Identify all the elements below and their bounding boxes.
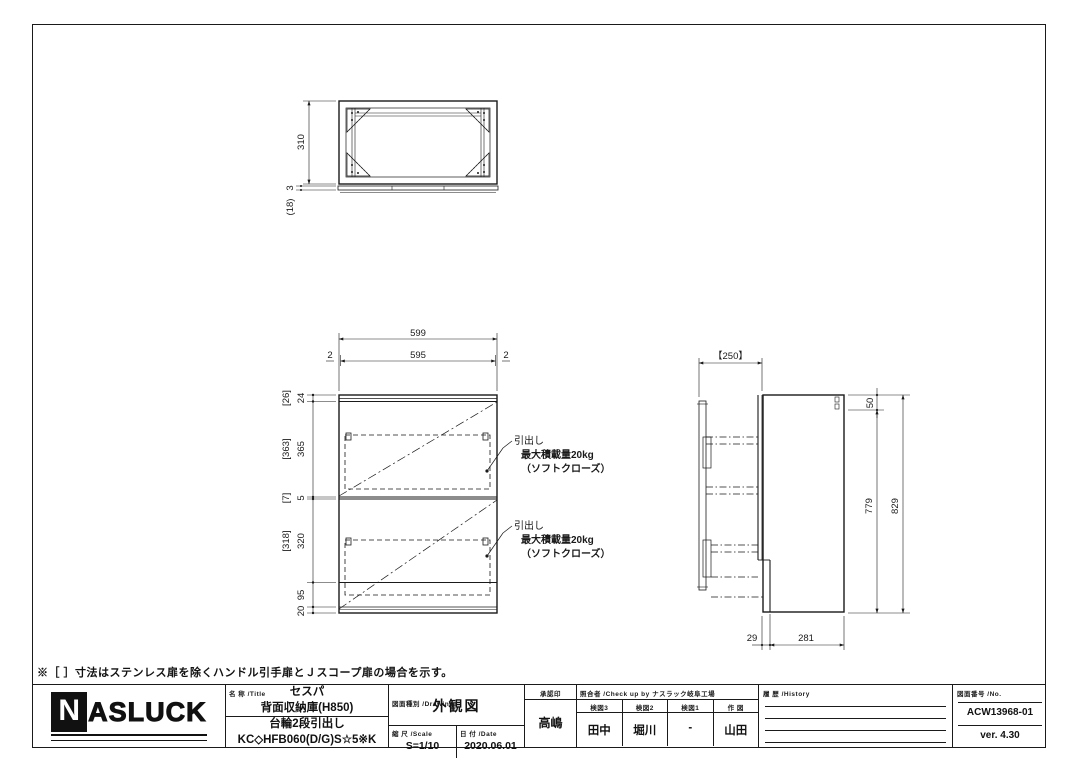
- dim-310: 310: [296, 134, 307, 150]
- nasluck-logo: NASLUCK: [51, 692, 206, 741]
- drawer-note-2-line2: 最大積載量20kg: [521, 533, 594, 546]
- product-name: 背面収納庫(H850): [226, 701, 388, 717]
- drawing-number-value: ACW13968-01: [953, 707, 1047, 718]
- check-col-1-name: -: [668, 722, 713, 734]
- bracket-dimension-note: ※［ ］寸法はステンレス扉を除くハンドル引手扉とＪスコープ扉の場合を示す。: [37, 664, 453, 680]
- product-type: 台輪2段引出し: [226, 716, 388, 733]
- drawing-version: ver. 4.30: [953, 730, 1047, 741]
- cad-drawing: 310 3 (18): [0, 0, 1080, 764]
- check-col-3: 検図3 田中: [577, 700, 623, 746]
- drawing-type-cell: 図面種別 /Drawing 外観図 縮 尺 /Scale S=1/10 日 付 …: [389, 685, 525, 747]
- title-block: NASLUCK 名 称 /Title セスパ 背面収納庫(H850) 台輪2段引…: [32, 684, 1046, 748]
- dim-50: 50: [865, 398, 876, 409]
- check-up-cell: 照合者 /Check up by ナスラック岐阜工場 検図3 田中 検図2 堀川…: [577, 685, 759, 747]
- dim-2-left: 2: [327, 350, 332, 361]
- check-up-label: 照合者 /Check up by ナスラック岐阜工場: [577, 685, 758, 700]
- approval-name: 高嶋: [525, 714, 576, 731]
- dim-829: 829: [890, 498, 901, 514]
- history-line: [765, 730, 946, 731]
- scale-label: 縮 尺 /Scale: [392, 728, 432, 738]
- date-cell: 日 付 /Date 2020.06.01: [457, 726, 524, 758]
- dim-779: 779: [864, 498, 875, 514]
- dim-318: [318]: [281, 530, 292, 551]
- dim-18: (18): [285, 199, 296, 216]
- check-col-draw-label: 作 図: [714, 700, 759, 713]
- front-view: 599 2 595 2 [26] 24 [363]: [281, 328, 611, 616]
- drawing-number-cell: 図面番号 /No. ACW13968-01 ver. 4.30: [953, 685, 1047, 747]
- date-value: 2020.06.01: [457, 740, 524, 752]
- drawing-number-label: 図面番号 /No.: [957, 688, 1002, 698]
- scale-value: S=1/10: [389, 740, 456, 752]
- check-col-3-label: 検図3: [577, 700, 622, 713]
- dim-595: 595: [410, 350, 426, 361]
- dim-599: 599: [410, 328, 426, 339]
- plan-view: 310 3 (18): [285, 101, 498, 215]
- dim-365: 365: [296, 441, 307, 457]
- dim-320: 320: [296, 533, 307, 549]
- dim-20: 20: [296, 606, 307, 617]
- title-label: 名 称 /Title: [229, 687, 266, 703]
- check-col-2-label: 検図2: [623, 700, 668, 713]
- number-separator: [958, 702, 1042, 703]
- side-view: 【250】 50 779 829 29 281: [697, 351, 910, 650]
- check-col-2-name: 堀川: [623, 722, 668, 738]
- history-cell: 履 歴 /History: [759, 685, 953, 747]
- product-series: セスパ: [290, 686, 325, 698]
- dim-26: [26]: [281, 390, 292, 406]
- dim-250: 【250】: [713, 351, 748, 362]
- date-label: 日 付 /Date: [460, 728, 497, 738]
- drawer-note-1-line2: 最大積載量20kg: [521, 448, 594, 461]
- logo-cell: NASLUCK: [33, 685, 226, 747]
- logo-wordmark: ASLUCK: [88, 697, 207, 727]
- dim-5: 5: [296, 495, 307, 500]
- check-col-3-name: 田中: [577, 722, 622, 738]
- history-label: 履 歴 /History: [763, 688, 810, 698]
- screw-dots: [351, 111, 485, 174]
- title-cell: 名 称 /Title セスパ 背面収納庫(H850) 台輪2段引出し KC◇HF…: [226, 685, 389, 747]
- check-col-1-label: 検図1: [668, 700, 713, 713]
- approval-label: 承認印: [525, 685, 576, 700]
- logo-letter-n: N: [51, 692, 87, 732]
- history-line: [765, 706, 946, 707]
- check-col-1: 検図1 -: [668, 700, 714, 746]
- dim-3: 3: [285, 185, 296, 190]
- logo-underline: [51, 734, 206, 741]
- dim-29: 29: [747, 633, 758, 644]
- dim-281: 281: [798, 633, 814, 644]
- drawer-note-2-line3: （ソフトクローズ）: [521, 547, 611, 560]
- check-col-2: 検図2 堀川: [623, 700, 669, 746]
- scale-cell: 縮 尺 /Scale S=1/10: [389, 726, 457, 758]
- product-code: KC◇HFB060(D/G)S☆5※K: [226, 733, 388, 749]
- dim-7: [7]: [281, 493, 292, 504]
- dim-95: 95: [296, 590, 307, 601]
- check-col-draw: 作 図 山田: [714, 700, 759, 746]
- approval-cell: 承認印 高嶋: [525, 685, 577, 747]
- drawing-sheet: 310 3 (18): [0, 0, 1080, 764]
- check-col-draw-name: 山田: [714, 722, 759, 738]
- drawer-note-1-line1: 引出し: [514, 434, 544, 447]
- dim-24: 24: [296, 393, 307, 404]
- history-line: [765, 742, 946, 743]
- history-line: [765, 718, 946, 719]
- dim-363: [363]: [281, 438, 292, 459]
- drawer-note-2-line1: 引出し: [514, 519, 544, 532]
- drawer-note-1-line3: （ソフトクローズ）: [521, 462, 611, 475]
- drawing-type-label: 図面種別 /Drawing: [392, 698, 454, 708]
- dim-2-right: 2: [503, 350, 508, 361]
- number-separator: [958, 725, 1042, 726]
